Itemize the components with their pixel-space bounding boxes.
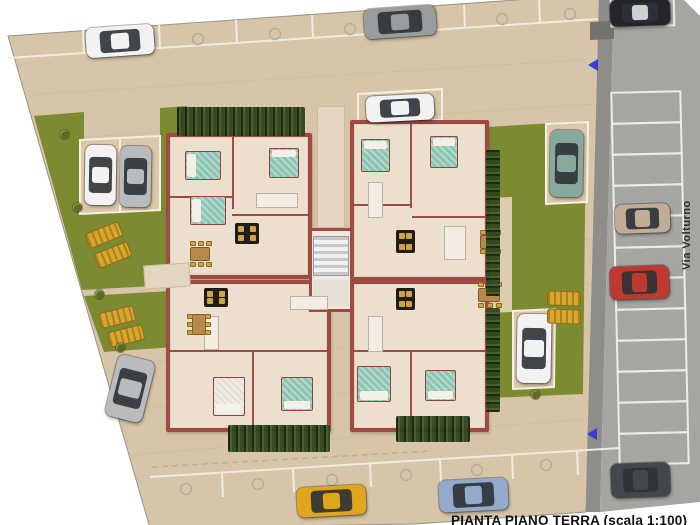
interior-wall bbox=[232, 214, 310, 216]
plan-caption: PIANTA PIANO TERRA (scala 1:100) bbox=[451, 513, 687, 525]
pergola-hedge bbox=[486, 150, 500, 296]
car-roof bbox=[633, 470, 649, 490]
bed-pillow bbox=[428, 391, 453, 399]
car-roof bbox=[391, 100, 409, 115]
wooden-table bbox=[192, 314, 205, 335]
chair bbox=[478, 282, 484, 287]
car-silver-left-pocket bbox=[119, 146, 151, 208]
street-name-label: Via Volturno bbox=[681, 178, 693, 270]
bed bbox=[190, 196, 226, 225]
car-red-street bbox=[609, 265, 669, 300]
bathroom-kitchen-fixture bbox=[256, 193, 298, 208]
chair bbox=[250, 226, 256, 232]
chair bbox=[187, 314, 193, 319]
chair bbox=[205, 322, 211, 327]
car-roof bbox=[557, 155, 576, 173]
bed-pillow bbox=[216, 404, 242, 414]
car-blue-bottom-row bbox=[438, 477, 509, 513]
car-roof bbox=[632, 273, 648, 292]
sun-lounger bbox=[547, 308, 582, 324]
car-yellow-bottom-row bbox=[296, 484, 366, 518]
bathroom-kitchen-fixture bbox=[368, 316, 383, 352]
car-gray-top-row bbox=[363, 5, 437, 40]
interior-wall bbox=[170, 350, 328, 352]
car-roof bbox=[322, 492, 341, 510]
dining-table-dark bbox=[235, 223, 259, 244]
site-plan: Via Volturno PIANTA PIANO TERRA (scala 1… bbox=[0, 0, 700, 525]
chair bbox=[399, 233, 405, 239]
sun-lounger bbox=[547, 290, 582, 306]
interior-wall bbox=[252, 352, 254, 428]
chair bbox=[207, 291, 213, 297]
car-roof bbox=[464, 486, 483, 505]
bed bbox=[185, 151, 221, 180]
dining-table-dark bbox=[396, 230, 415, 253]
sun-lounger bbox=[107, 324, 146, 348]
chair bbox=[478, 303, 484, 308]
chair bbox=[206, 262, 212, 267]
chair bbox=[406, 244, 412, 250]
car-silver-diagonal bbox=[104, 353, 156, 423]
bed-pillow bbox=[364, 141, 387, 149]
chair bbox=[187, 330, 193, 335]
bed bbox=[281, 377, 313, 411]
bed-pillow bbox=[433, 138, 455, 146]
chair bbox=[399, 301, 405, 307]
car-tan-street bbox=[615, 203, 671, 234]
car-roof bbox=[524, 339, 543, 357]
bed-pillow bbox=[192, 199, 201, 222]
chair bbox=[198, 262, 204, 267]
shrub bbox=[116, 343, 125, 352]
chair bbox=[190, 241, 196, 246]
entrance-walkway-north bbox=[317, 106, 345, 228]
chair bbox=[238, 235, 244, 241]
chair bbox=[207, 298, 213, 304]
car-roof bbox=[127, 168, 145, 184]
chair bbox=[219, 298, 225, 304]
dining-table-dark bbox=[204, 288, 228, 307]
car-roof bbox=[92, 167, 110, 183]
entrance-path-west bbox=[143, 262, 191, 289]
bed bbox=[357, 366, 391, 402]
interior-wall bbox=[232, 137, 234, 209]
bed bbox=[269, 148, 299, 178]
bed-pillow bbox=[360, 391, 388, 400]
staircase bbox=[313, 236, 349, 276]
chair bbox=[399, 244, 405, 250]
car-white-top-row bbox=[85, 24, 155, 59]
chair bbox=[406, 233, 412, 239]
car-white-right-pocket bbox=[516, 314, 551, 384]
chair bbox=[205, 314, 211, 319]
chair bbox=[187, 322, 193, 327]
interior-wall bbox=[412, 216, 486, 218]
pergola-hedge bbox=[177, 107, 305, 136]
shrub bbox=[531, 390, 540, 399]
plan-items-layer bbox=[0, 0, 700, 525]
bed-pillow bbox=[187, 154, 196, 177]
chair bbox=[190, 262, 196, 267]
bed bbox=[430, 136, 458, 168]
car-roof bbox=[390, 13, 410, 31]
car-white-left-pocket bbox=[84, 145, 116, 206]
car-roof bbox=[111, 32, 130, 50]
chair bbox=[198, 241, 204, 246]
chair bbox=[406, 291, 412, 297]
car-black-street-top bbox=[610, 0, 671, 27]
outdoor-dining-set bbox=[186, 241, 214, 267]
shrub bbox=[60, 130, 69, 139]
pergola-hedge bbox=[228, 425, 330, 452]
apartment-unit-bottom-right bbox=[350, 280, 489, 432]
chair bbox=[399, 291, 405, 297]
chair bbox=[219, 291, 225, 297]
chair bbox=[250, 235, 256, 241]
car-white-north-of-building bbox=[365, 93, 434, 123]
car-teal-right-pocket bbox=[549, 130, 583, 198]
bed bbox=[213, 377, 245, 416]
chair bbox=[238, 226, 244, 232]
wooden-table bbox=[190, 247, 210, 262]
bed bbox=[425, 370, 456, 401]
car-roof bbox=[632, 5, 648, 21]
bed bbox=[361, 139, 390, 172]
bathroom-kitchen-fixture bbox=[290, 296, 328, 310]
interior-wall bbox=[410, 124, 412, 208]
chair bbox=[205, 330, 211, 335]
pergola-hedge bbox=[486, 308, 500, 412]
bed-pillow bbox=[284, 401, 310, 409]
bed-pillow bbox=[272, 150, 296, 157]
outdoor-dining-set bbox=[187, 309, 211, 339]
car-darkgray-street-bottom bbox=[610, 462, 670, 498]
pergola-hedge bbox=[396, 416, 470, 442]
bathroom-kitchen-fixture bbox=[368, 182, 383, 218]
dining-table-dark bbox=[396, 288, 415, 310]
shrub bbox=[73, 203, 82, 212]
chair bbox=[206, 241, 212, 246]
car-roof bbox=[635, 210, 650, 227]
bathroom-kitchen-fixture bbox=[444, 226, 466, 260]
shrub bbox=[95, 290, 104, 299]
chair bbox=[406, 301, 412, 307]
